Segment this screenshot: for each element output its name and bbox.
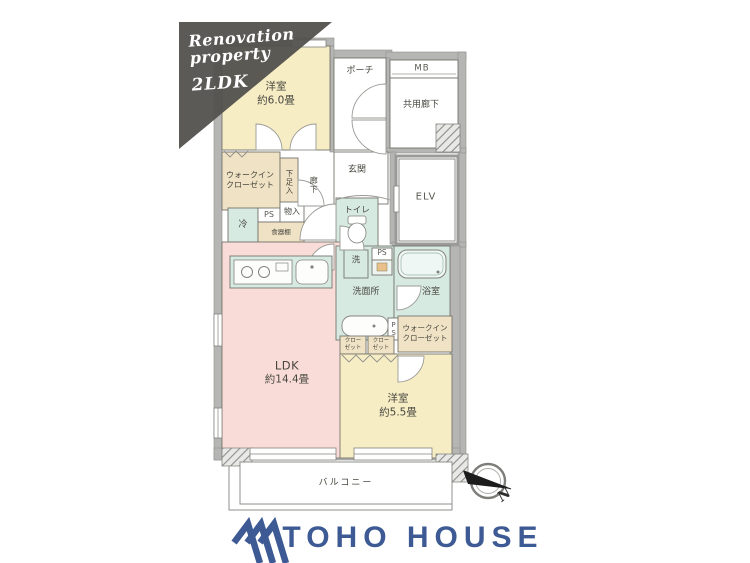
wall-porch-corridor: [386, 58, 390, 150]
vanity-sink-icon: [342, 316, 388, 336]
brand-name: TOHO HOUSE: [282, 521, 543, 555]
label-closet-a: クロー ゼット: [345, 338, 362, 352]
floorplan-drawing: [0, 0, 750, 563]
label-wic-left: ウォークイン クローゼット: [226, 171, 274, 192]
label-mb: MB: [414, 63, 429, 74]
label-fridge: 冷: [238, 220, 247, 232]
hatch-block-top-right: [436, 124, 460, 152]
wall-top-porch: [330, 50, 392, 58]
label-closet-b: クロー ゼット: [373, 338, 390, 352]
label-entrance: 玄関: [348, 165, 366, 177]
label-porch: ポーチ: [346, 66, 373, 78]
label-toilet: トイレ: [344, 205, 370, 216]
faucet-icon: [310, 265, 313, 268]
stove-icon: [234, 260, 292, 284]
label-common-corridor: 共用廊下: [403, 100, 439, 112]
toilet-bowl-icon: [348, 223, 366, 243]
elevator-door-icon: [394, 186, 399, 212]
bath-drain-icon: [437, 271, 440, 274]
label-ps-washroom: PS: [377, 248, 386, 258]
label-ps-kitchen: PS: [264, 210, 274, 220]
sink-icon: [296, 260, 328, 284]
label-balcony: バルコニー: [319, 478, 374, 490]
label-hallway: 廊下: [308, 176, 318, 194]
label-bathroom: 浴室: [422, 287, 440, 299]
label-elevator: ELV: [416, 191, 437, 204]
water-heater-icon: [377, 263, 387, 271]
wall-top-mb: [386, 52, 466, 60]
wall-bedroom-porch: [330, 46, 334, 152]
logo-mark-spacer: [206, 515, 268, 561]
label-storage: 物入: [284, 207, 300, 217]
label-washer: 洗: [352, 255, 361, 266]
room-entrance: [334, 152, 388, 204]
label-washroom: 洗面所: [352, 287, 379, 299]
bathtub-icon: [398, 250, 446, 278]
label-ldk: LDK 約14.4畳: [265, 359, 309, 388]
floorplan-page: 洋室 約6.0畳 ポーチ MB 共用廊下 ウォークイン クローゼット 下足入 廊…: [0, 0, 750, 563]
label-shoe-cabinet: 下足入: [284, 169, 294, 195]
brand-footer: TOHO HOUSE: [0, 513, 750, 563]
label-wic-right: ウォークイン クローゼット: [403, 323, 448, 343]
door-hall-ldk: [300, 204, 336, 240]
label-ps-side: PS: [388, 321, 397, 337]
label-bedroom-6: 洋室 約6.0畳: [257, 80, 295, 107]
vanity-faucet-icon: [373, 325, 376, 328]
label-cupboard: 食器棚: [271, 228, 291, 236]
label-bedroom-55: 洋室 約5.5畳: [379, 392, 417, 419]
